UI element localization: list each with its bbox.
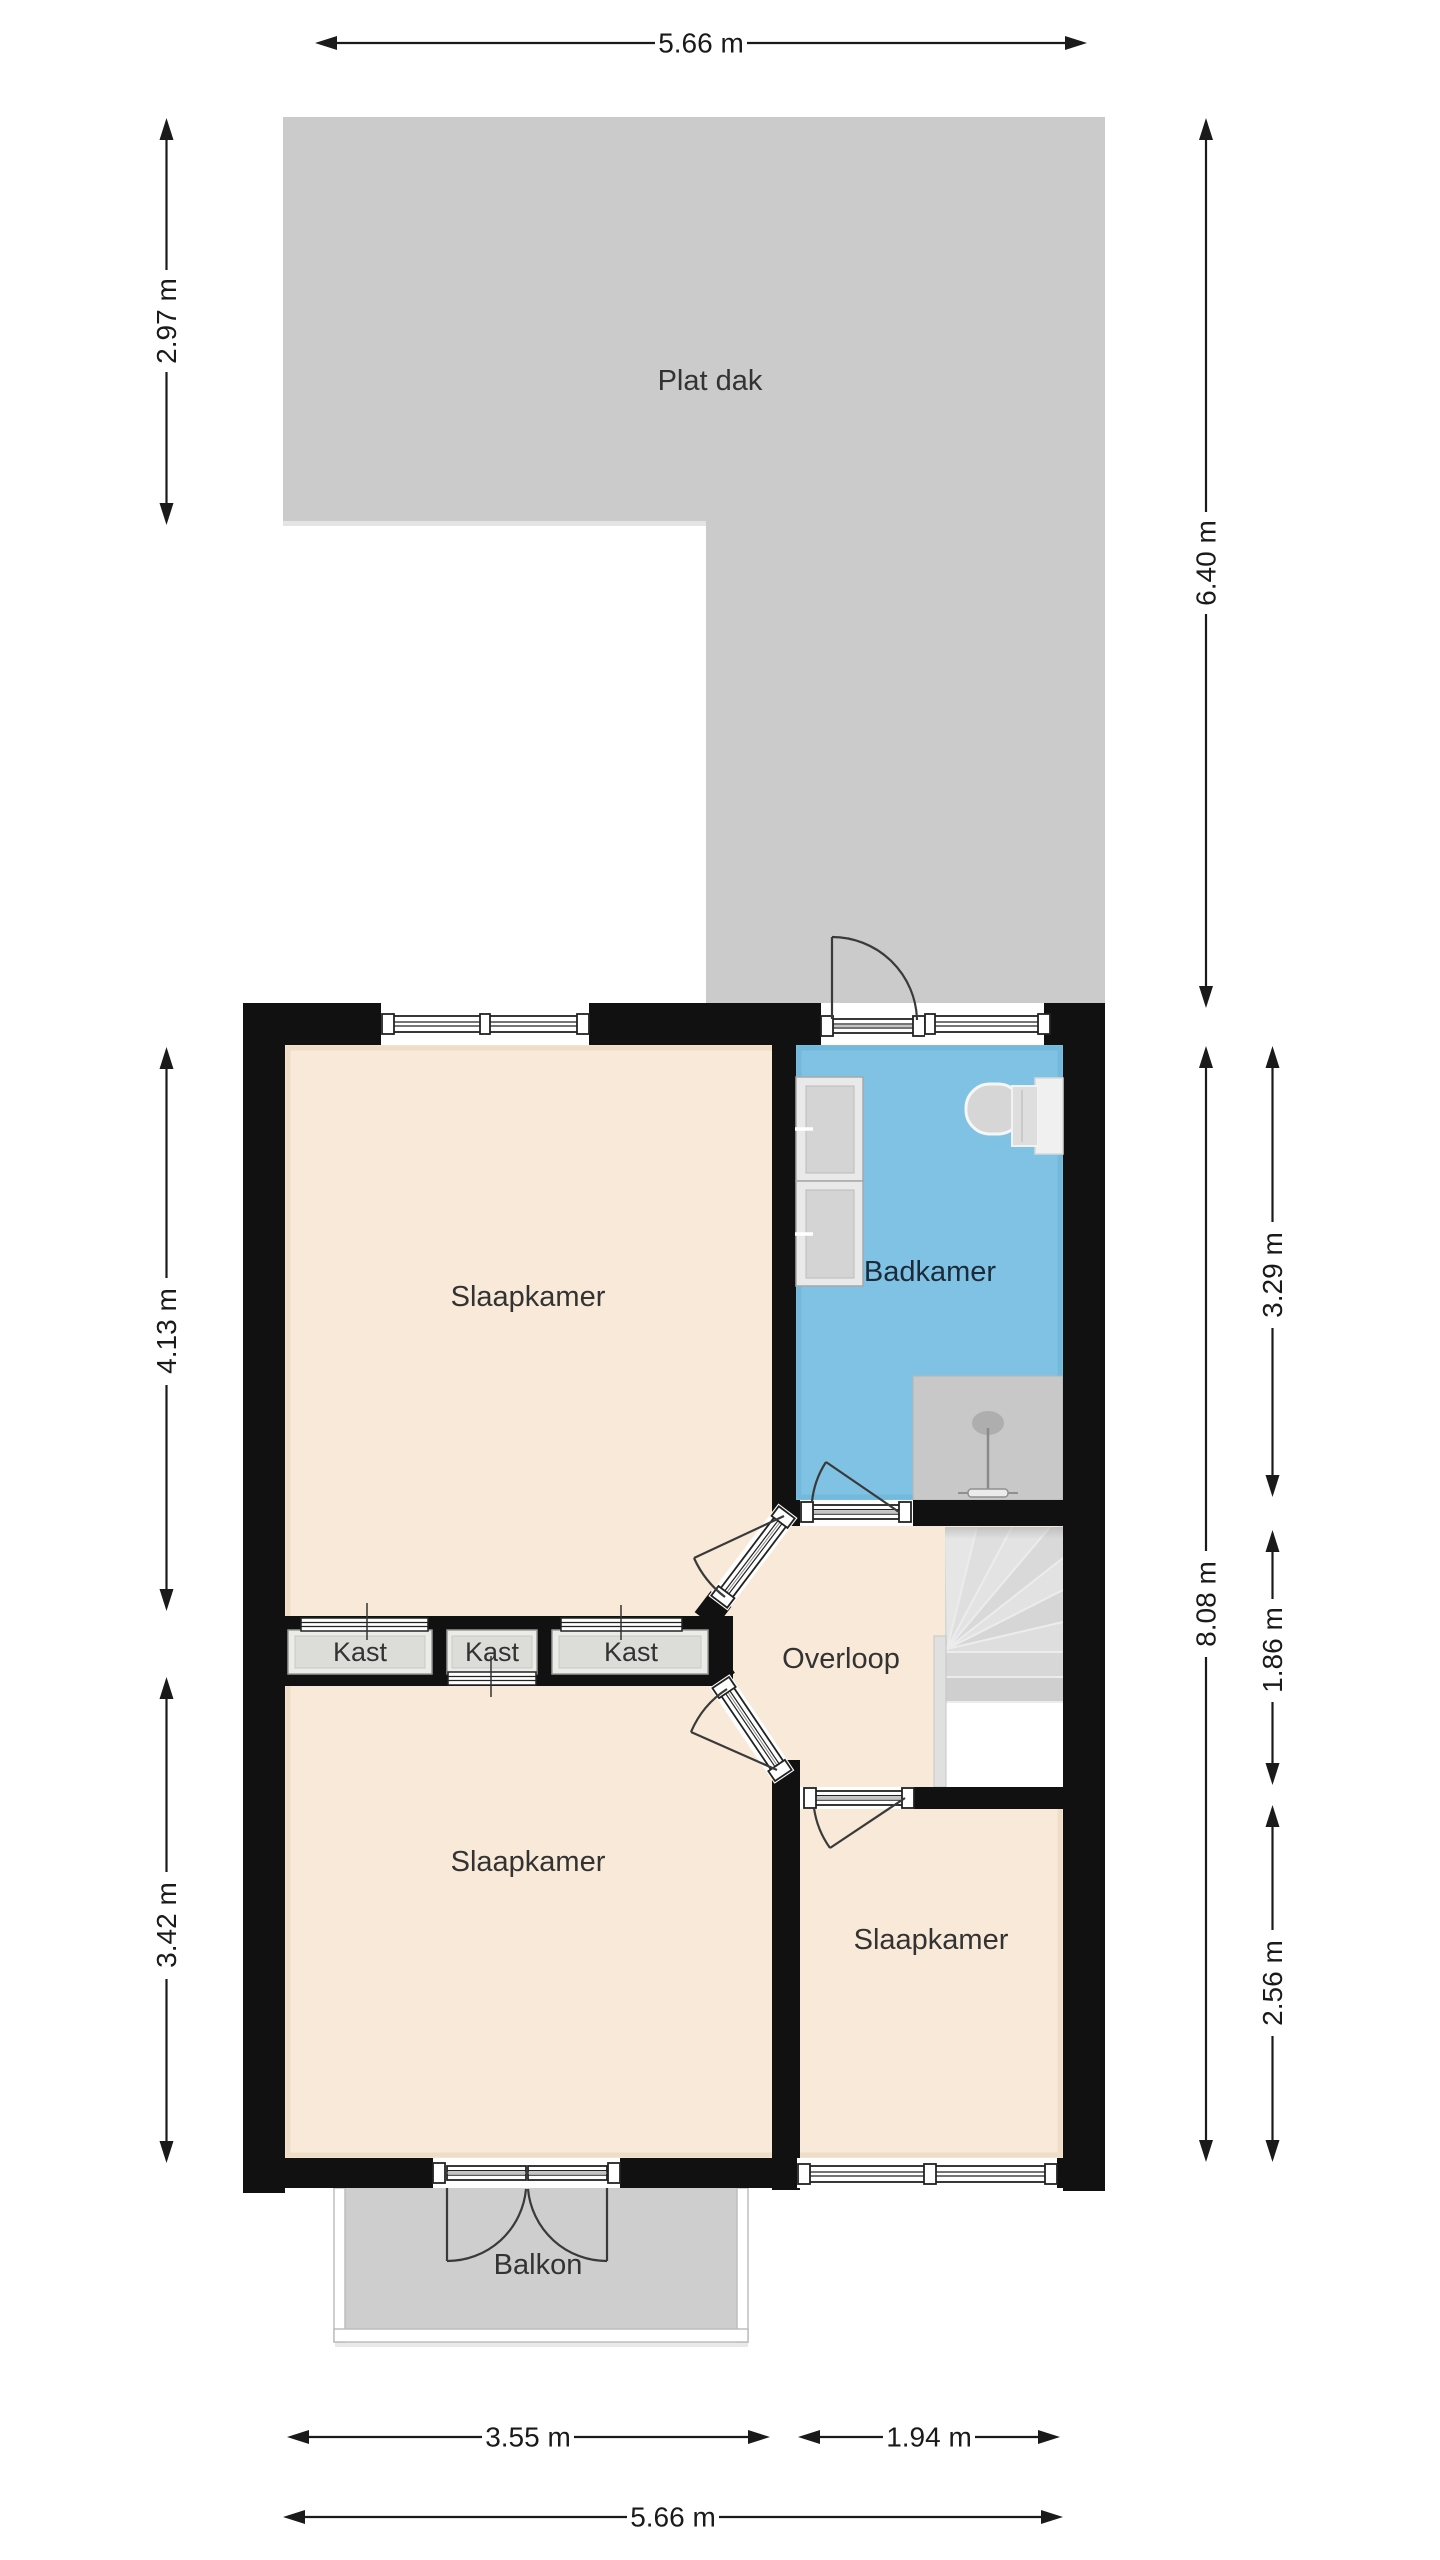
svg-text:Plat dak: Plat dak bbox=[658, 365, 763, 397]
svg-text:2.97 m: 2.97 m bbox=[151, 278, 182, 364]
svg-text:Slaapkamer: Slaapkamer bbox=[854, 1924, 1009, 1956]
svg-text:1.94 m: 1.94 m bbox=[886, 2422, 972, 2453]
svg-text:2.56 m: 2.56 m bbox=[1257, 1940, 1288, 2026]
svg-text:6.40 m: 6.40 m bbox=[1191, 520, 1222, 606]
svg-text:8.08 m: 8.08 m bbox=[1191, 1561, 1222, 1647]
svg-text:3.29 m: 3.29 m bbox=[1257, 1232, 1288, 1318]
svg-text:Badkamer: Badkamer bbox=[864, 1256, 997, 1288]
svg-text:Slaapkamer: Slaapkamer bbox=[451, 1846, 606, 1878]
svg-text:1.86 m: 1.86 m bbox=[1257, 1607, 1288, 1693]
svg-text:3.42 m: 3.42 m bbox=[151, 1882, 182, 1968]
svg-text:Kast: Kast bbox=[333, 1637, 388, 1667]
svg-text:Slaapkamer: Slaapkamer bbox=[451, 1281, 606, 1313]
svg-text:Kast: Kast bbox=[604, 1637, 659, 1667]
svg-text:3.55 m: 3.55 m bbox=[485, 2422, 571, 2453]
svg-text:4.13 m: 4.13 m bbox=[151, 1288, 182, 1374]
svg-text:Balkon: Balkon bbox=[494, 2249, 583, 2281]
svg-text:Kast: Kast bbox=[465, 1637, 520, 1667]
svg-text:Overloop: Overloop bbox=[782, 1643, 900, 1675]
svg-text:5.66 m: 5.66 m bbox=[658, 28, 744, 59]
svg-text:5.66 m: 5.66 m bbox=[630, 2502, 716, 2533]
